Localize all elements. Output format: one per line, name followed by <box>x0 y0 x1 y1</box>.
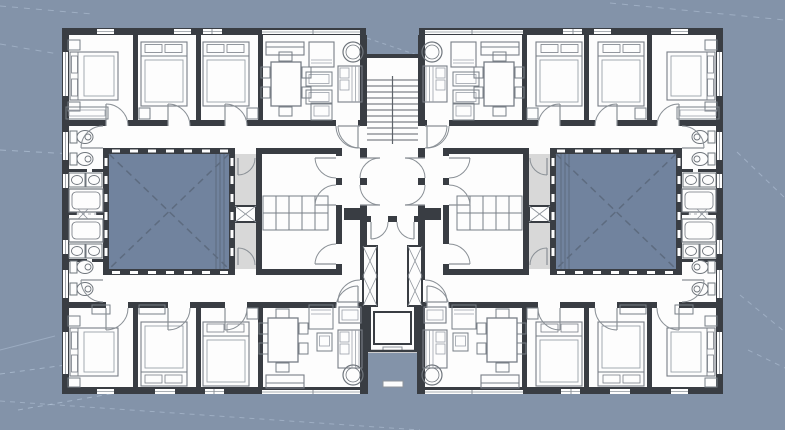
bedroom-wall <box>647 302 652 387</box>
door-opening <box>595 120 617 126</box>
door-opening <box>360 126 367 148</box>
door-opening <box>336 156 342 178</box>
bath-partition <box>69 169 87 172</box>
hall-wall-top <box>256 148 342 154</box>
bedroom-wall <box>522 35 527 126</box>
service-wall <box>344 208 360 220</box>
bedroom-wall <box>196 35 201 126</box>
door-opening <box>168 120 190 126</box>
door-opening <box>443 244 449 264</box>
hall-wall-bottom <box>256 269 342 275</box>
bedroom-wall <box>584 35 589 126</box>
toilet-tank <box>70 261 77 273</box>
bedroom-wall <box>133 302 138 387</box>
door-opening <box>397 216 414 222</box>
door-opening <box>657 120 679 126</box>
service-wall <box>425 208 441 220</box>
entry-step <box>383 381 403 387</box>
floorplan-viewport <box>0 0 785 430</box>
bath-partition <box>682 259 693 262</box>
bath-partition <box>92 259 103 262</box>
duct-shaft <box>363 246 377 306</box>
door-opening <box>371 216 388 222</box>
bedroom-wall <box>196 302 201 387</box>
bath-partition <box>92 169 103 172</box>
toilet-tank <box>70 283 77 295</box>
bath-partition <box>682 169 693 172</box>
door-opening <box>427 120 449 126</box>
entry-vestibule <box>374 312 411 344</box>
floorplan-svg[interactable] <box>0 0 785 430</box>
vestibule-wall <box>414 305 422 352</box>
door-opening <box>418 185 425 205</box>
hall-wall-top <box>443 148 529 154</box>
duct-shaft <box>408 246 422 306</box>
toilet-tank <box>708 261 715 273</box>
door-opening <box>336 120 358 126</box>
door-opening <box>336 244 342 264</box>
toilet-tank <box>708 283 715 295</box>
bedroom-wall <box>133 35 138 126</box>
hall-wall-bottom <box>443 269 529 275</box>
toilet-tank <box>708 131 715 143</box>
vestibule-wall <box>363 305 371 352</box>
door-opening <box>538 120 560 126</box>
door-opening <box>225 302 247 308</box>
door-opening <box>360 185 367 205</box>
entry-recess <box>366 353 419 394</box>
top-recess <box>366 28 419 54</box>
door-opening <box>360 158 367 178</box>
toilet-tank <box>708 153 715 165</box>
door-opening <box>168 302 190 308</box>
door-opening <box>443 185 449 205</box>
door-opening <box>595 302 617 308</box>
toilet-tank <box>70 131 77 143</box>
door-opening <box>225 120 247 126</box>
stair-hall-wall <box>367 54 418 58</box>
bedroom-wall <box>258 35 263 126</box>
bedroom-wall <box>647 35 652 126</box>
door-opening <box>538 302 560 308</box>
door-opening <box>418 158 425 178</box>
door-opening <box>418 126 425 148</box>
door-opening <box>336 185 342 205</box>
bath-partition <box>698 169 716 172</box>
bedroom-wall <box>584 302 589 387</box>
door-opening <box>106 120 128 126</box>
door-opening <box>443 156 449 178</box>
toilet-tank <box>70 153 77 165</box>
